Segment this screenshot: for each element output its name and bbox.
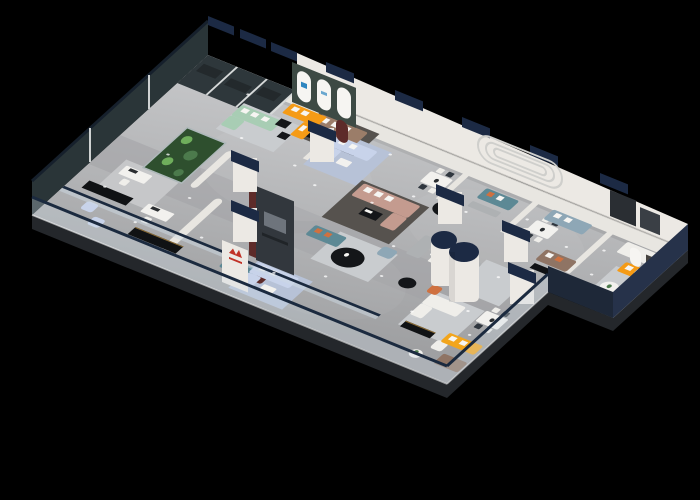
cylinder-shade: [449, 252, 455, 302]
white-cylinder: [449, 242, 479, 302]
showroom-render: [0, 0, 700, 500]
tv-wall-panel: [256, 186, 294, 275]
isometric-floorplan: [0, 0, 700, 500]
